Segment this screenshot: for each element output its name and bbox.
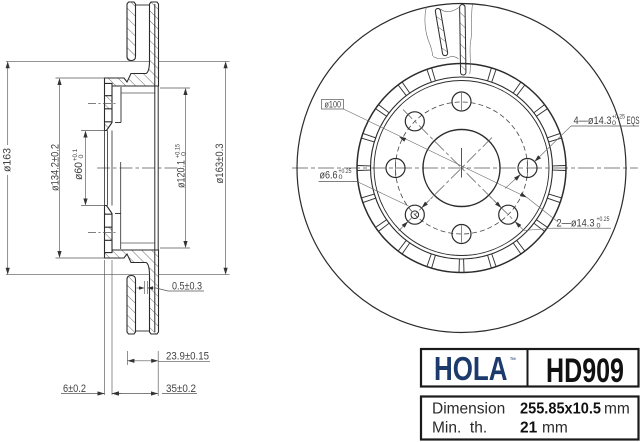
svg-text:Dimension: Dimension bbox=[432, 401, 505, 418]
svg-text:0: 0 bbox=[78, 154, 85, 158]
svg-text:ø6.6: ø6.6 bbox=[320, 170, 338, 182]
svg-text:HD909: HD909 bbox=[546, 352, 624, 390]
svg-text:EQS: EQS bbox=[627, 115, 640, 127]
svg-text:ø134.2±0.2: ø134.2±0.2 bbox=[49, 144, 61, 191]
svg-text:ø163±0.3: ø163±0.3 bbox=[214, 144, 226, 184]
svg-text:mm: mm bbox=[604, 401, 630, 418]
svg-text:6±0.2: 6±0.2 bbox=[63, 383, 86, 395]
svg-text:35±0.2: 35±0.2 bbox=[166, 383, 196, 395]
svg-text:0.5±0.3: 0.5±0.3 bbox=[172, 281, 202, 293]
svg-text:0: 0 bbox=[612, 120, 616, 127]
svg-text:0: 0 bbox=[181, 152, 188, 156]
svg-text:0: 0 bbox=[597, 222, 601, 229]
svg-text:mm: mm bbox=[542, 420, 568, 437]
svg-text:255.85x10.5: 255.85x10.5 bbox=[520, 401, 601, 418]
svg-text:™: ™ bbox=[510, 357, 517, 364]
svg-text:ø100: ø100 bbox=[325, 100, 342, 110]
svg-text:0: 0 bbox=[339, 174, 343, 181]
svg-text:ø120.1: ø120.1 bbox=[175, 160, 187, 188]
svg-text:ø60: ø60 bbox=[73, 162, 85, 180]
svg-text:ø163: ø163 bbox=[2, 148, 14, 172]
svg-text:HOLA: HOLA bbox=[434, 350, 508, 387]
svg-text:23.9±0.15: 23.9±0.15 bbox=[166, 351, 209, 363]
svg-text:4—ø14.3: 4—ø14.3 bbox=[574, 115, 612, 127]
svg-text:2—ø14.3: 2—ø14.3 bbox=[557, 218, 595, 230]
svg-text:Min. th.: Min. th. bbox=[432, 420, 487, 437]
svg-text:21: 21 bbox=[520, 420, 538, 437]
